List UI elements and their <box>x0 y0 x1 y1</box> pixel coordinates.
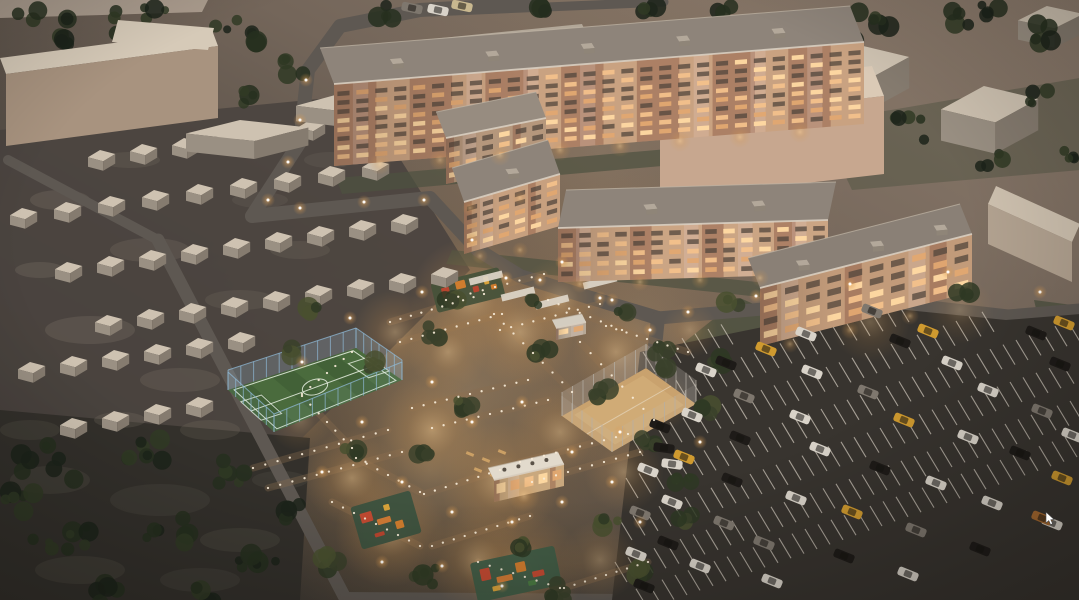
architectural-render-viewport <box>0 0 1079 600</box>
scene-svg <box>0 0 1079 600</box>
overlay <box>0 0 1079 600</box>
vignette <box>0 0 1079 600</box>
